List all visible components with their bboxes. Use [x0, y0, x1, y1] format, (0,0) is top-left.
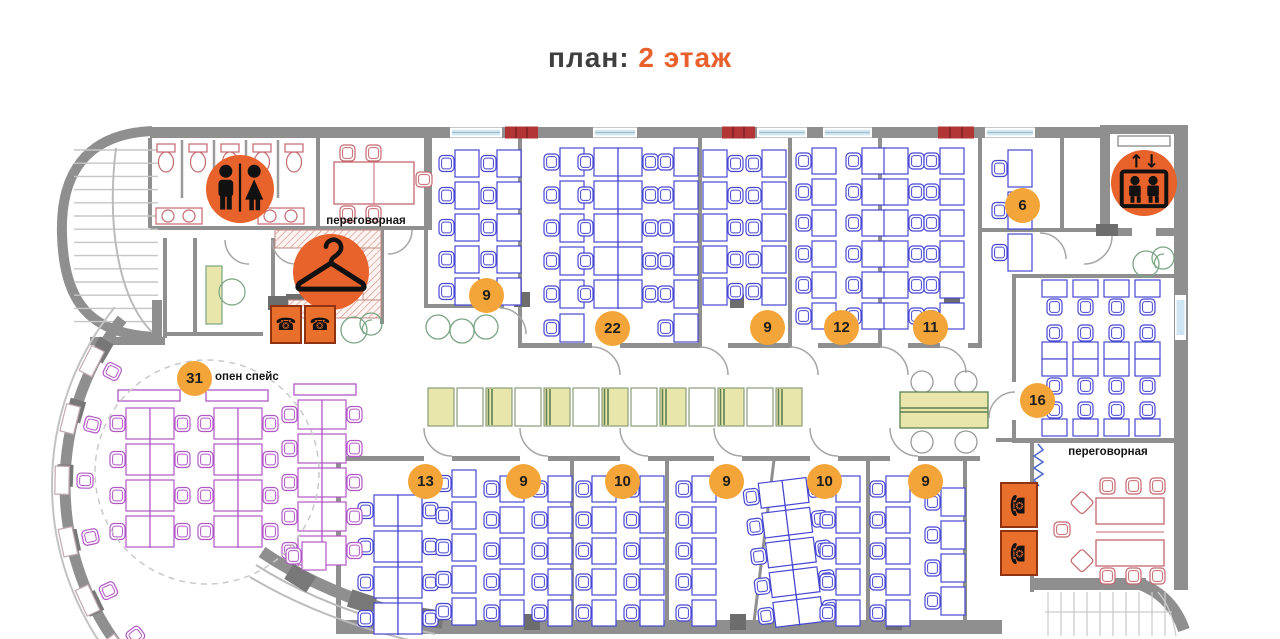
badge-room-9c: 9 [506, 464, 541, 499]
title-floor: 2 этаж [638, 42, 732, 73]
badge-room-6: 6 [1005, 188, 1040, 223]
floor-plan-svg [0, 0, 1280, 639]
badge-room-12: 12 [824, 310, 859, 345]
badge-room-13: 13 [408, 464, 443, 499]
badge-room-9d: 9 [709, 464, 744, 499]
badge-room-10a: 10 [605, 464, 640, 499]
badge-room-11: 11 [913, 310, 948, 345]
elevator-icon: ↑↓ [1111, 150, 1177, 216]
badge-room-10b: 10 [807, 464, 842, 499]
hanger-icon [293, 234, 369, 310]
label-meeting-room-top: переговорная [320, 215, 412, 227]
badge-open-space-31: 31 [177, 361, 212, 396]
badge-room-9b: 9 [750, 310, 785, 345]
phone-booth-icon: ☎ [304, 305, 336, 344]
label-meeting-room-bottom: переговорная [1058, 446, 1158, 458]
label-open-space: опен спейс [215, 371, 279, 383]
floor-plan-page: план: 2 этаж 9 22 9 12 11 6 16 31 13 9 1… [0, 0, 1280, 639]
phone-booth-icon: ☎ [270, 305, 302, 344]
badge-room-16: 16 [1020, 383, 1055, 418]
badge-room-9e: 9 [908, 464, 943, 499]
badge-room-22: 22 [595, 311, 630, 346]
wc-icon [206, 155, 274, 223]
phone-booth-icon: ☎ [1000, 530, 1038, 576]
title-prefix: план: [548, 42, 630, 73]
phone-booth-icon: ☎ [1000, 482, 1038, 528]
page-title: план: 2 этаж [0, 42, 1280, 74]
badge-room-9a: 9 [469, 278, 504, 313]
svg-text:↑↓: ↑↓ [1129, 151, 1159, 172]
